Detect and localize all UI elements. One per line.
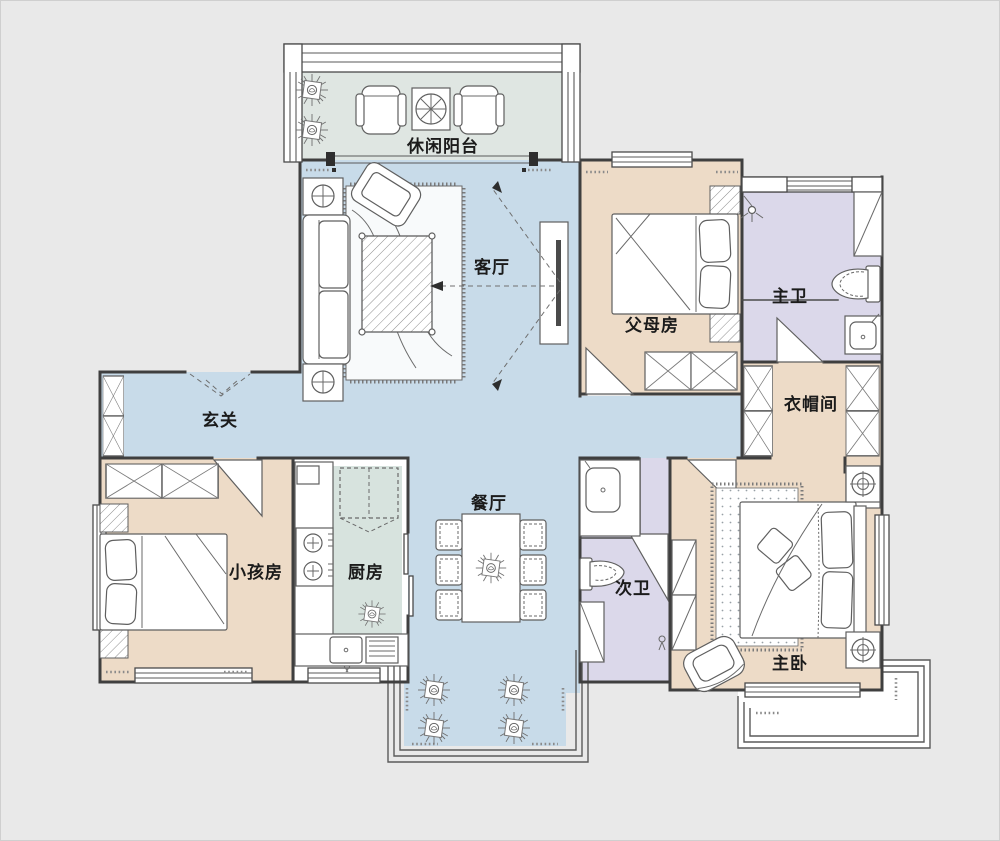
room-label-second-bath: 次卫 — [615, 578, 651, 599]
wardrobe — [846, 366, 879, 411]
side-table — [303, 364, 343, 401]
kitchen-sink-counter — [295, 634, 408, 672]
balcony-table — [412, 88, 450, 130]
dining-chair — [436, 590, 462, 620]
dining-furniture — [436, 514, 546, 622]
nightstand — [710, 314, 740, 342]
sink-counter — [580, 460, 640, 536]
wardrobe — [645, 352, 691, 390]
balcony-armchair — [454, 86, 504, 134]
tv-unit — [540, 222, 568, 344]
wardrobe — [744, 366, 773, 411]
kids-room-furniture — [100, 464, 227, 658]
room-label-dining-room: 餐厅 — [471, 493, 507, 514]
dining-chair — [520, 555, 546, 585]
room-label-master-bath: 主卫 — [772, 286, 808, 307]
wardrobe — [106, 464, 162, 498]
dining-chair — [520, 590, 546, 620]
room-label-cloakroom: 衣帽间 — [784, 394, 838, 415]
dining-chair — [436, 555, 462, 585]
side-table — [303, 178, 343, 215]
room-label-entrance-hall: 玄关 — [202, 410, 238, 431]
sofa — [303, 215, 350, 364]
window-masterbath-north — [742, 177, 882, 192]
shoe-cabinet — [103, 376, 124, 416]
nightstand — [100, 504, 128, 532]
nightstand — [710, 186, 740, 214]
shoe-cabinet — [103, 416, 124, 456]
room-label-kids-room: 小孩房 — [229, 562, 283, 583]
floor-plan-canvas: 休闲阳台 客厅 父母房 主卫 衣帽间 玄关 小孩房 厨房 餐厅 次卫 主卧 — [0, 0, 1000, 841]
wardrobe — [846, 411, 879, 456]
window-kids-south — [135, 668, 252, 683]
floor-hall-east — [578, 396, 742, 458]
coffee-table — [359, 233, 435, 335]
window-parents-north — [612, 152, 692, 167]
nightstand-round — [846, 632, 880, 668]
master-bed — [740, 502, 866, 638]
dining-chair — [436, 520, 462, 550]
sink — [845, 314, 881, 354]
window-kitchen-south — [308, 668, 380, 683]
room-label-kitchen: 厨房 — [348, 562, 384, 583]
window-master-east — [875, 515, 889, 625]
shower-head-icon — [749, 207, 756, 214]
nightstand — [100, 630, 128, 658]
room-label-leisure-balcony: 休闲阳台 — [406, 136, 479, 157]
double-bed — [612, 214, 738, 314]
wardrobe — [744, 411, 773, 456]
nightstand-round — [846, 466, 880, 502]
closet — [672, 540, 696, 650]
room-label-parents-room: 父母房 — [624, 315, 679, 336]
wardrobe — [691, 352, 737, 390]
floor-plan: 休闲阳台 客厅 父母房 主卫 衣帽间 玄关 小孩房 厨房 餐厅 次卫 主卧 — [0, 0, 1000, 841]
room-label-living-room: 客厅 — [473, 257, 510, 278]
kids-bed — [100, 534, 227, 630]
wardrobe — [162, 464, 218, 498]
counter-corner — [297, 466, 319, 484]
stove — [296, 528, 333, 586]
window-master-south — [745, 683, 860, 697]
balcony-armchair — [356, 86, 406, 134]
room-label-master-bedroom: 主卧 — [772, 653, 808, 674]
dining-chair — [520, 520, 546, 550]
